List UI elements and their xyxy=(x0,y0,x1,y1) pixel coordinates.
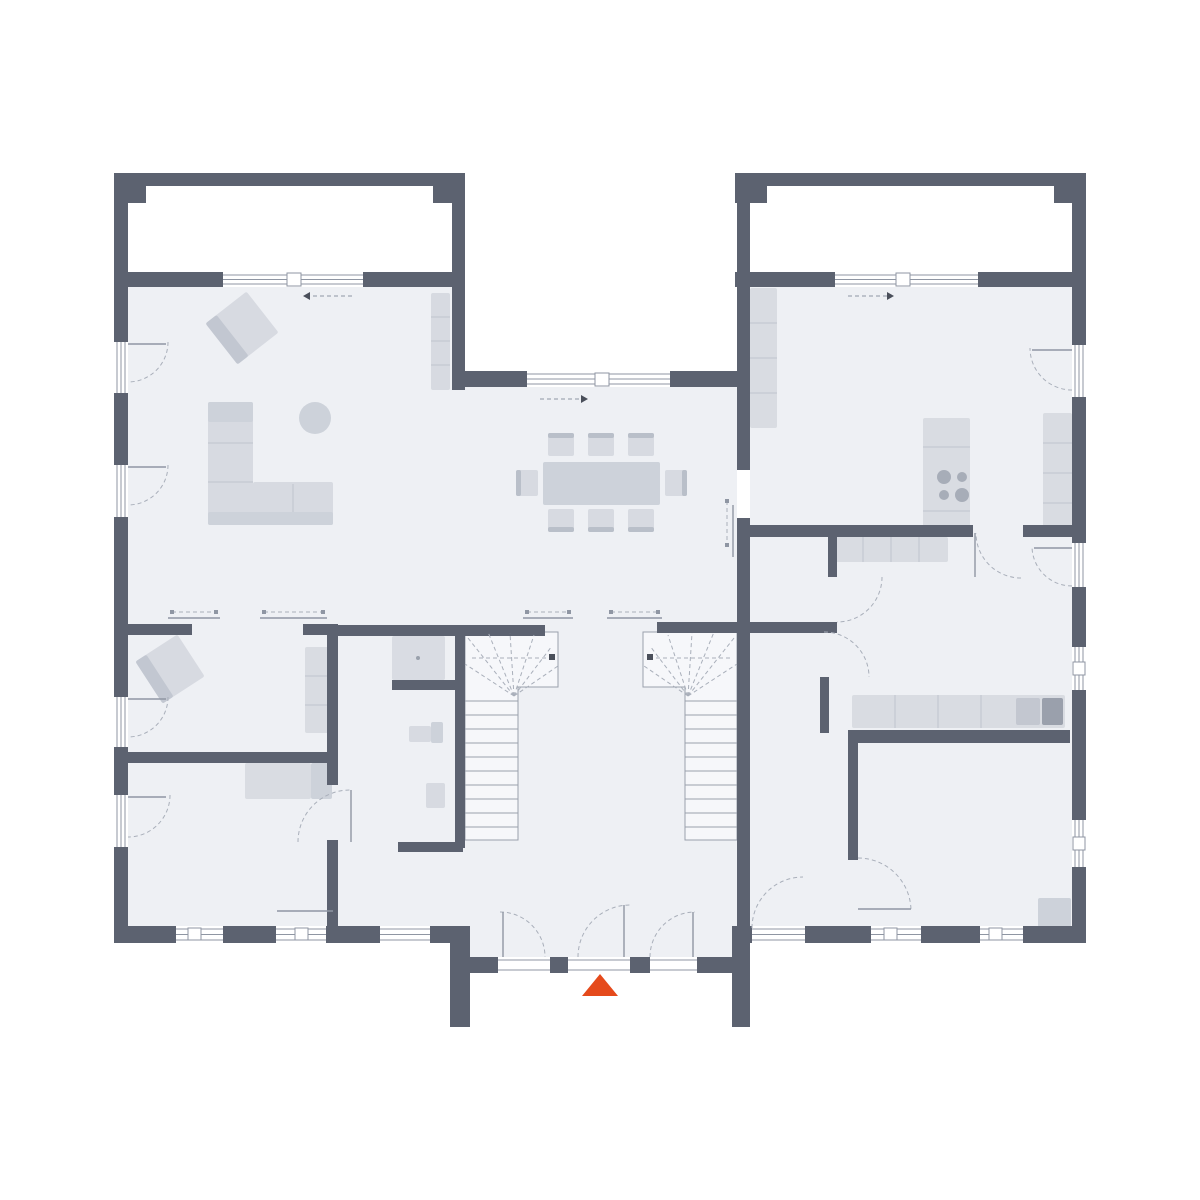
wall xyxy=(450,926,470,1027)
wall xyxy=(848,730,1070,743)
wall xyxy=(737,186,750,470)
wall xyxy=(327,840,338,926)
wall xyxy=(750,622,837,633)
wall xyxy=(697,957,735,973)
toilet-tank xyxy=(431,722,443,743)
dining-chair-back xyxy=(628,527,654,532)
window-symbol xyxy=(188,928,201,940)
left-wing-floor xyxy=(128,287,452,926)
wall xyxy=(750,525,973,537)
dining-chair-back xyxy=(516,470,521,496)
slide-dot xyxy=(656,610,660,614)
toilet-bowl xyxy=(409,726,431,742)
wall xyxy=(398,842,463,852)
slide-dot xyxy=(525,610,529,614)
wall xyxy=(732,926,750,1027)
slide-dot xyxy=(321,610,325,614)
wall xyxy=(330,625,545,636)
entrance-arrow xyxy=(582,974,618,996)
dining-chair-back xyxy=(588,527,614,532)
slide-dot xyxy=(725,543,729,547)
wall xyxy=(392,680,465,690)
dining-table xyxy=(543,462,660,505)
slide-dot xyxy=(170,610,174,614)
sofa-cushion xyxy=(208,402,253,422)
stove-burner xyxy=(939,490,949,500)
slide-dot xyxy=(725,499,729,503)
side-table-round xyxy=(299,402,331,434)
terrace-right xyxy=(748,186,1073,272)
slide-dot xyxy=(262,610,266,614)
window-symbol xyxy=(896,273,910,286)
wall xyxy=(1054,173,1086,203)
wall xyxy=(630,957,650,973)
dining-chair-back xyxy=(548,433,574,438)
wall xyxy=(128,752,332,763)
floor-plan xyxy=(0,0,1200,1200)
wall xyxy=(828,525,837,577)
wall xyxy=(114,173,465,186)
slide-dot xyxy=(609,610,613,614)
wall xyxy=(1023,525,1072,537)
utility-sink-drainer xyxy=(1016,698,1040,725)
window-symbol xyxy=(595,373,609,386)
corner-cabinet xyxy=(1038,898,1071,927)
sofa-edge xyxy=(208,512,333,525)
wall xyxy=(465,957,498,973)
dining-chair-back xyxy=(588,433,614,438)
wall xyxy=(114,173,146,203)
wall xyxy=(657,622,750,633)
dining-chair-back xyxy=(628,433,654,438)
shelf-office xyxy=(305,647,329,733)
window-symbol xyxy=(1073,837,1085,850)
wall xyxy=(848,730,858,860)
wall xyxy=(820,677,829,733)
wall xyxy=(737,518,750,926)
stair-walkline-dot xyxy=(647,654,653,660)
wall xyxy=(452,186,465,390)
window-symbol xyxy=(295,928,308,940)
stove-burner xyxy=(957,472,967,482)
slide-dot xyxy=(567,610,571,614)
floor-plan-page xyxy=(0,0,1200,1200)
stove-burner xyxy=(937,470,951,484)
window-symbol xyxy=(989,928,1002,940)
window-symbol xyxy=(884,928,897,940)
wall xyxy=(550,957,568,973)
stove-burner xyxy=(955,488,969,502)
dining-chair-back xyxy=(682,470,687,496)
utility-sink-basin xyxy=(1042,698,1063,725)
stair-walkline-dot xyxy=(549,654,555,660)
window-symbol xyxy=(1073,662,1085,675)
shower-drain xyxy=(416,656,420,660)
terrace-left xyxy=(128,186,452,272)
wall xyxy=(735,173,1086,186)
wall xyxy=(128,624,192,635)
dining-chair-back xyxy=(548,527,574,532)
wall xyxy=(455,625,465,848)
window-symbol xyxy=(287,273,301,286)
right-wing-floor xyxy=(750,287,1072,926)
slide-dot xyxy=(214,610,218,614)
desk-room xyxy=(245,763,311,799)
wash-basin xyxy=(426,783,445,808)
